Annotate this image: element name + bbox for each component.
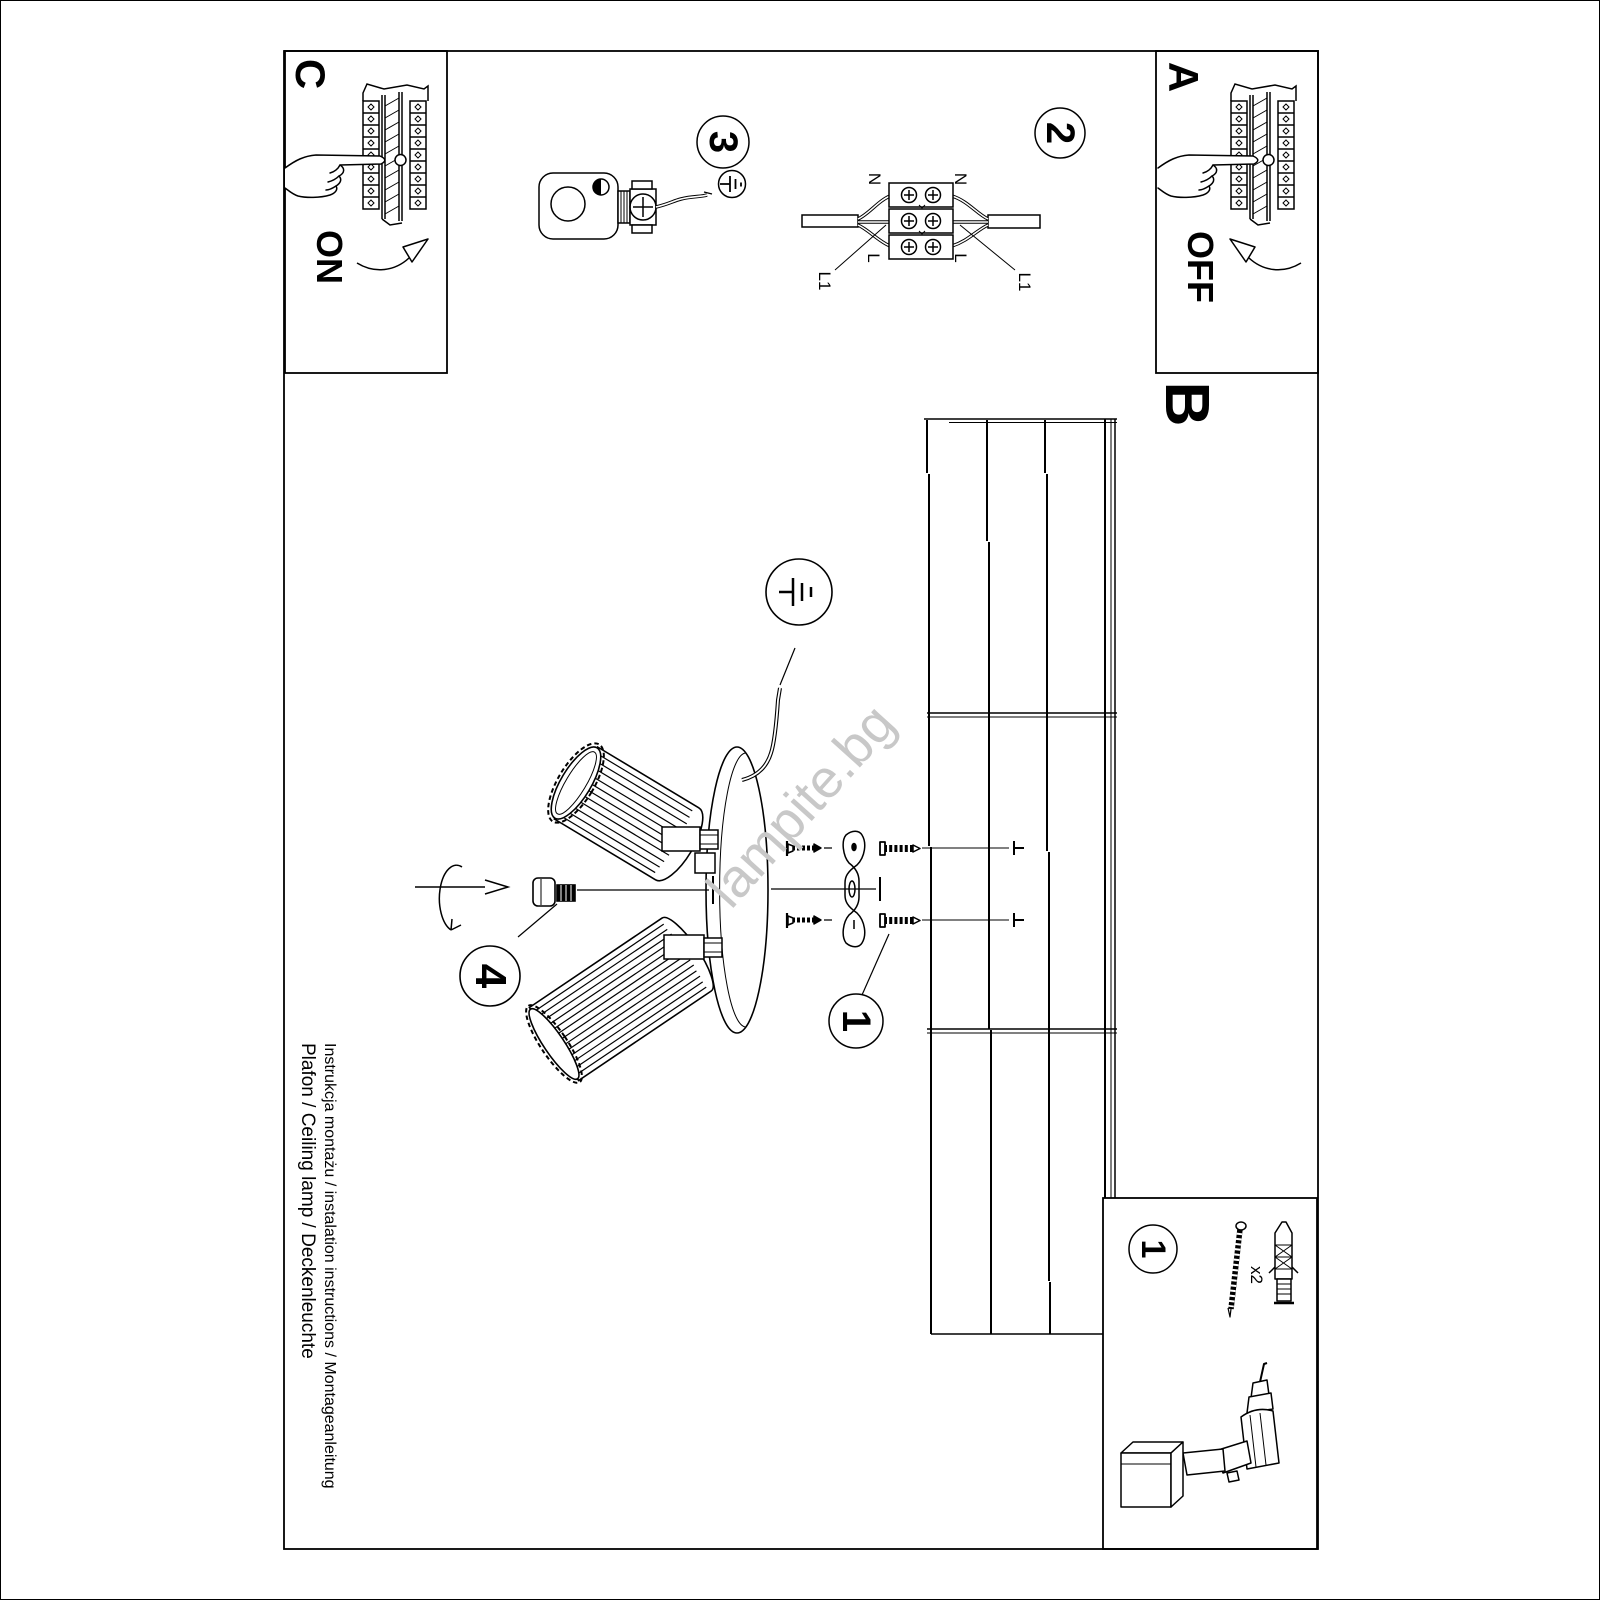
on-arrow-icon <box>357 239 428 270</box>
wiring-label-l1-right: L1 <box>1007 264 1043 300</box>
title-line-1: Instrukcja montażu / instalation instruc… <box>321 1043 337 1489</box>
off-arrow-icon <box>1230 239 1301 270</box>
wall-plug-icon <box>880 842 920 855</box>
wiring-label-l1-left: L1 <box>807 263 843 299</box>
ceiling-screw-icon <box>1014 913 1024 927</box>
panel-c-box <box>285 51 447 373</box>
wiring-label-l-left: L <box>859 243 889 273</box>
lamp-shade-upper <box>537 735 714 890</box>
panel-c-state-on: ON <box>299 227 359 287</box>
cable-left <box>802 215 858 227</box>
wiring-label-l-right: L <box>946 243 976 273</box>
toolbox-step-number: 1 <box>1128 1224 1178 1274</box>
panel-a-box <box>1156 51 1318 373</box>
section-b-label: B <box>1151 369 1221 439</box>
cable-right <box>988 215 1040 228</box>
step4-number: 4 <box>465 951 515 1001</box>
toolbox-screw-quantity: x2 <box>1239 1257 1275 1293</box>
instruction-sheet: C ON A OFF B 2 3 4 1 1 N N L L L1 L1 x2 … <box>0 0 1600 1600</box>
ceiling-boards <box>924 419 1117 1334</box>
earth-symbol-icon <box>766 559 832 625</box>
step2-number: 2 <box>1035 108 1085 158</box>
earth-symbol-icon <box>719 171 746 198</box>
screw-icon <box>787 913 821 928</box>
drill-icon <box>1121 1363 1279 1507</box>
step1-number: 1 <box>831 996 881 1046</box>
panel-c-label: C <box>288 52 332 96</box>
wall-plug-icon <box>880 914 920 927</box>
set-screw-knob <box>533 878 575 906</box>
rotation-arrow-icon <box>415 865 508 930</box>
wiring-label-n-left: N <box>860 164 890 194</box>
step3-number: 3 <box>698 117 748 167</box>
mounting-hardware <box>771 831 1024 1048</box>
panel-a-label: A <box>1161 55 1205 99</box>
panel-a-state-off: OFF <box>1165 232 1235 302</box>
ceiling-screw-icon <box>1014 841 1024 855</box>
wiring-label-n-right: N <box>946 164 976 194</box>
title-line-2: Plafon / Ceiling lamp / Deckenleuchte <box>298 1043 317 1359</box>
